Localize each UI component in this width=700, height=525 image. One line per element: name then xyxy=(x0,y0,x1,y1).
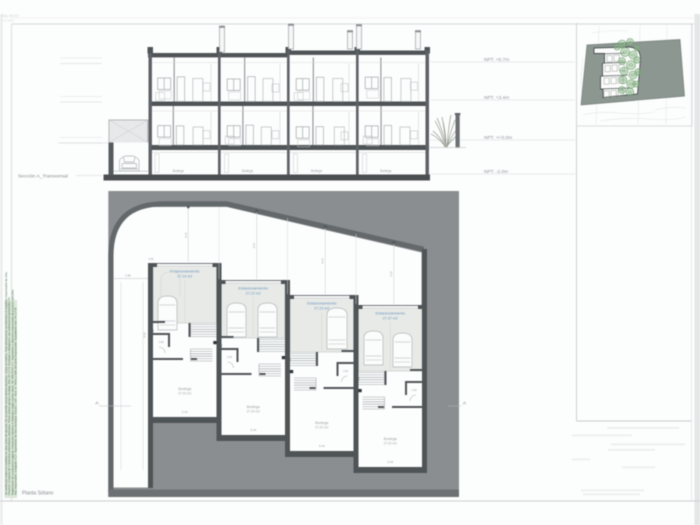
svg-text:5.44: 5.44 xyxy=(182,410,188,414)
svg-text:Bodega: Bodega xyxy=(173,169,184,173)
svg-text:27.00 m2: 27.00 m2 xyxy=(247,410,261,414)
svg-text:Bodega: Bodega xyxy=(311,169,322,173)
svg-text:Bodega: Bodega xyxy=(242,169,253,173)
svg-text:V.1 2004: V.1 2004 xyxy=(2,19,14,23)
svg-text:27.00 m2: 27.00 m2 xyxy=(315,426,329,430)
svg-text:8.06: 8.06 xyxy=(143,332,147,338)
svg-text:NPT. -2.0m: NPT. -2.0m xyxy=(484,169,508,175)
svg-text:1.60: 1.60 xyxy=(227,355,233,359)
svg-text:2.98: 2.98 xyxy=(125,274,131,278)
svg-text:1.60: 1.60 xyxy=(411,388,417,392)
svg-text:Sección A_Transversal: Sección A_Transversal xyxy=(18,174,68,180)
svg-text:Estacionamiento: Estacionamiento xyxy=(238,286,268,291)
svg-text:Exp. 04-117: Exp. 04-117 xyxy=(2,14,19,18)
svg-text:27.23 m2: 27.23 m2 xyxy=(246,292,261,296)
svg-text:Bodega: Bodega xyxy=(178,387,192,391)
svg-text:Bodega: Bodega xyxy=(384,437,398,441)
svg-text:5.44: 5.44 xyxy=(387,460,393,464)
svg-text:NPT. +3.4m: NPT. +3.4m xyxy=(484,95,509,101)
svg-text:NPT. +/-0.0m: NPT. +/-0.0m xyxy=(484,135,512,141)
svg-text:27.00 m2: 27.00 m2 xyxy=(384,442,398,446)
svg-text:Bodega: Bodega xyxy=(247,405,261,409)
svg-text:27.00 m2: 27.00 m2 xyxy=(178,392,192,396)
svg-text:1.60: 1.60 xyxy=(343,369,349,373)
svg-text:8.06: 8.06 xyxy=(252,242,256,248)
svg-text:8.06: 8.06 xyxy=(321,258,325,264)
svg-text:5.08: 5.08 xyxy=(149,258,154,261)
svg-text:Planta Sótano: Planta Sótano xyxy=(22,491,54,497)
svg-text:Estacionamiento: Estacionamiento xyxy=(375,311,405,316)
svg-text:8.06: 8.06 xyxy=(389,271,393,277)
svg-text:Bodega: Bodega xyxy=(315,421,329,425)
svg-text:Arq. responsable: colegiado 41: Arq. responsable: colegiado 4117. Superv… xyxy=(13,307,17,495)
svg-text:5.44: 5.44 xyxy=(319,444,325,448)
svg-text:1.60: 1.60 xyxy=(158,340,164,344)
svg-text:Bodega: Bodega xyxy=(380,169,391,173)
svg-text:27.37 m2: 27.37 m2 xyxy=(383,317,398,321)
svg-text:Estacionamiento: Estacionamiento xyxy=(307,301,337,306)
svg-text:8.06: 8.06 xyxy=(184,232,188,238)
svg-text:5.44: 5.44 xyxy=(250,428,256,432)
svg-text:NPT. +6.7m: NPT. +6.7m xyxy=(484,57,509,63)
svg-text:27.23 m2: 27.23 m2 xyxy=(314,307,329,311)
svg-text:Estacionamiento: Estacionamiento xyxy=(170,269,200,274)
